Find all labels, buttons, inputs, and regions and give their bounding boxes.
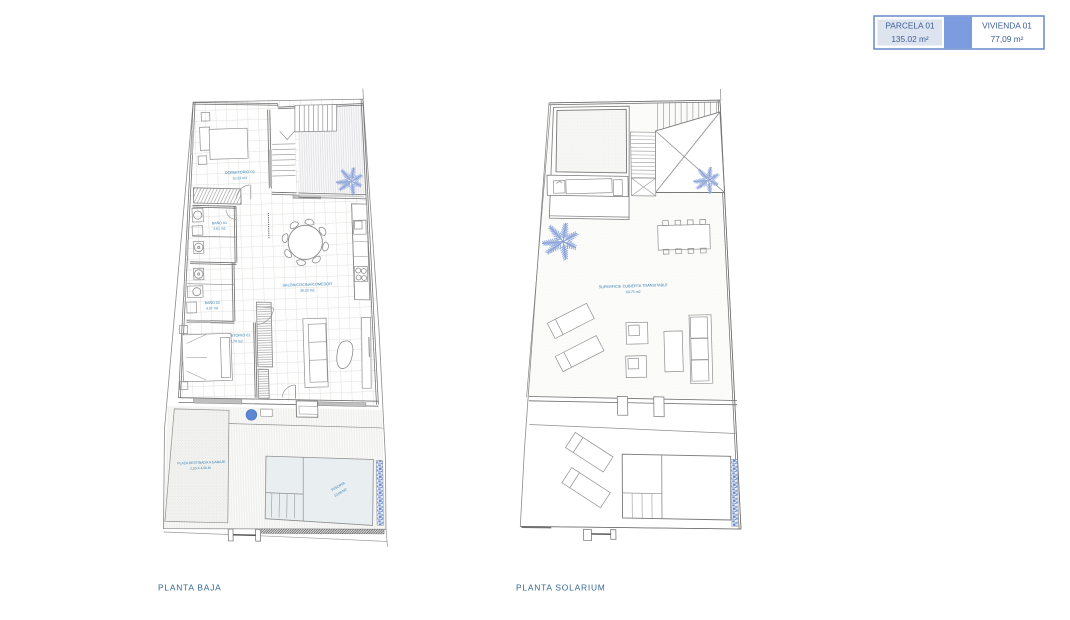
svg-text:PLANTA SOLARIUM: PLANTA SOLARIUM [516, 583, 606, 593]
svg-text:PLANTA BAJA: PLANTA BAJA [158, 583, 222, 593]
svg-text:10.23 m2: 10.23 m2 [232, 176, 247, 180]
svg-text:BAÑO 02: BAÑO 02 [205, 300, 220, 305]
svg-text:BAÑO 01: BAÑO 01 [212, 220, 227, 225]
svg-text:135.02 m²: 135.02 m² [891, 34, 929, 44]
svg-text:2,20 X 4,50 M: 2,20 X 4,50 M [190, 466, 211, 471]
svg-text:36.23 m2: 36.23 m2 [300, 288, 315, 292]
svg-text:VIVIENDA 01: VIVIENDA 01 [982, 21, 1032, 31]
svg-text:4,07 m2: 4,07 m2 [206, 306, 218, 310]
svg-text:PARCELA 01: PARCELA 01 [885, 21, 935, 31]
svg-text:77,09 m²: 77,09 m² [991, 34, 1024, 44]
svg-text:60,75 m2: 60,75 m2 [626, 290, 641, 294]
svg-text:3.61 m2: 3.61 m2 [213, 226, 225, 230]
